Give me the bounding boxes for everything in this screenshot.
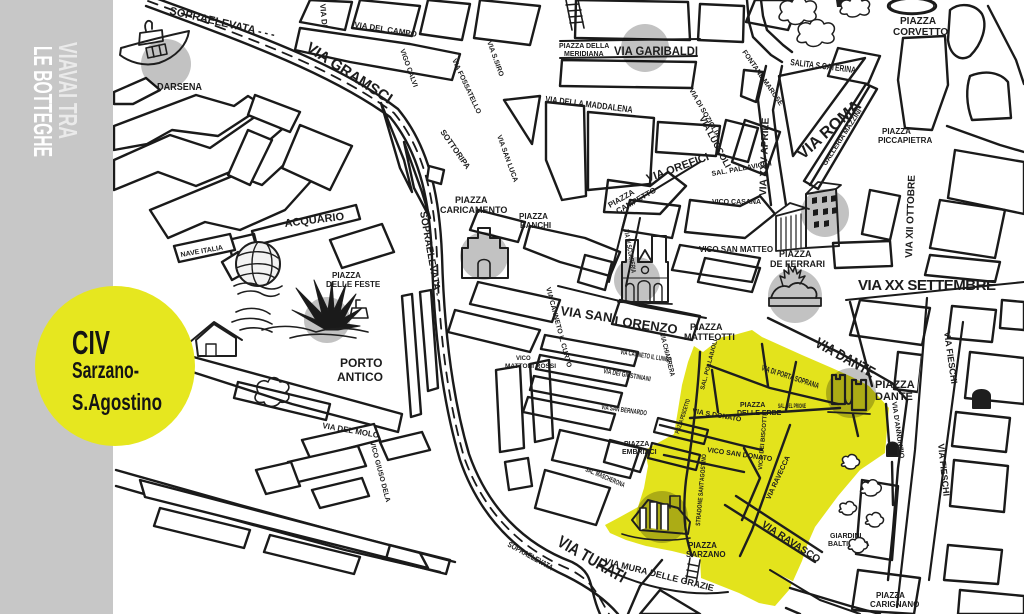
svg-text:SARZANO: SARZANO: [686, 550, 726, 559]
svg-text:CORVETTO: CORVETTO: [893, 27, 948, 38]
svg-text:CARIGNANO: CARIGNANO: [870, 600, 919, 609]
svg-text:PICCAPIETRA: PICCAPIETRA: [878, 136, 932, 145]
svg-text:PIAZZA: PIAZZA: [624, 441, 649, 448]
svg-text:VICO SAN MATTEO: VICO SAN MATTEO: [699, 245, 773, 254]
svg-text:S.Agostino: S.Agostino: [72, 389, 162, 415]
svg-text:DELLE FESTE: DELLE FESTE: [326, 280, 381, 289]
svg-text:PIAZZA: PIAZZA: [332, 271, 361, 280]
svg-text:PIAZZA: PIAZZA: [519, 212, 548, 221]
svg-text:DELLE ERBE: DELLE ERBE: [737, 410, 782, 417]
svg-text:CIV: CIV: [72, 324, 110, 361]
svg-text:VICO CASANA: VICO CASANA: [712, 199, 761, 206]
svg-text:DE FERRARI: DE FERRARI: [770, 259, 825, 269]
svg-text:VICO: VICO: [516, 356, 531, 362]
svg-text:PIAZZA: PIAZZA: [690, 322, 723, 332]
svg-text:ANTICO: ANTICO: [337, 370, 383, 384]
svg-text:PORTO: PORTO: [340, 356, 382, 370]
svg-text:PIAZZA: PIAZZA: [900, 16, 936, 27]
svg-text:LE BOTTEGHE: LE BOTTEGHE: [28, 46, 58, 157]
svg-text:PIAZZA: PIAZZA: [875, 379, 915, 391]
svg-text:PIAZZA: PIAZZA: [688, 541, 717, 550]
svg-text:MATTONI ROSSI: MATTONI ROSSI: [505, 363, 556, 370]
svg-text:VIA GARIBALDI: VIA GARIBALDI: [614, 44, 698, 58]
svg-text:EMBRIACI: EMBRIACI: [622, 449, 657, 456]
svg-text:MATTEOTTI: MATTEOTTI: [684, 332, 735, 342]
svg-text:VIA XX SETTEMBRE: VIA XX SETTEMBRE: [858, 277, 996, 294]
svg-text:Sarzano-: Sarzano-: [72, 357, 139, 383]
svg-text:MERIDIANA: MERIDIANA: [564, 51, 604, 58]
svg-text:SAL. DEL PRIONE: SAL. DEL PRIONE: [778, 404, 806, 410]
svg-text:DARSENA: DARSENA: [157, 82, 202, 93]
svg-text:PIAZZA DELLA: PIAZZA DELLA: [559, 43, 609, 50]
svg-text:PIAZZA: PIAZZA: [455, 195, 488, 205]
svg-text:PIAZZA: PIAZZA: [876, 591, 905, 600]
svg-text:CARICAMENTO: CARICAMENTO: [440, 205, 507, 215]
svg-text:BANCHI: BANCHI: [520, 221, 551, 230]
svg-text:PIAZZA: PIAZZA: [882, 127, 911, 136]
svg-text:PIAZZA: PIAZZA: [740, 402, 765, 409]
